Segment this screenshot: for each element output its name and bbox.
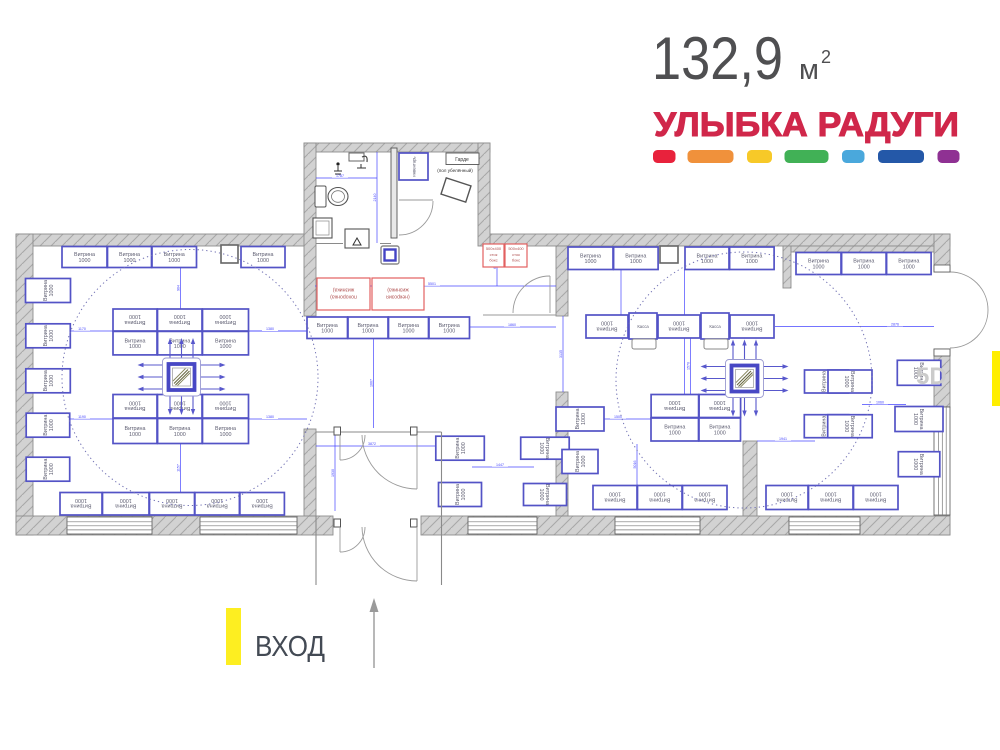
svg-text:похоронка): похоронка)	[330, 294, 357, 300]
svg-text:1000: 1000	[362, 329, 374, 335]
svg-text:1000: 1000	[220, 313, 232, 319]
svg-text:2: 2	[821, 47, 831, 67]
svg-text:1000: 1000	[669, 430, 681, 436]
svg-text:Касса: Касса	[637, 324, 649, 329]
svg-text:бокс: бокс	[489, 258, 497, 263]
svg-text:1000: 1000	[858, 264, 870, 270]
svg-text:1000: 1000	[781, 491, 793, 497]
svg-text:5016: 5016	[633, 461, 637, 469]
svg-text:1447: 1447	[496, 463, 504, 467]
svg-text:1000: 1000	[129, 432, 141, 438]
svg-text:УЛЫБКА РАДУГИ: УЛЫБКА РАДУГИ	[654, 106, 959, 144]
svg-text:1000: 1000	[443, 329, 455, 335]
svg-text:1000: 1000	[174, 399, 186, 405]
svg-text:964: 964	[176, 285, 180, 291]
svg-text:1000: 1000	[912, 413, 918, 425]
svg-text:1667: 1667	[369, 379, 373, 387]
svg-text:3872: 3872	[368, 442, 376, 446]
svg-text:1000: 1000	[714, 430, 726, 436]
svg-text:1000: 1000	[220, 344, 232, 350]
svg-text:1000: 1000	[124, 258, 136, 264]
svg-text:(пол убелённый): (пол убелённый)	[437, 167, 473, 173]
svg-text:1000: 1000	[257, 258, 269, 264]
svg-text:1000: 1000	[699, 491, 711, 497]
svg-text:1000: 1000	[609, 491, 621, 497]
svg-text:жизника): жизника)	[332, 287, 354, 293]
svg-text:1000: 1000	[174, 344, 186, 350]
svg-text:1000: 1000	[49, 419, 55, 431]
svg-text:1000: 1000	[601, 320, 613, 326]
svg-text:1000: 1000	[129, 399, 141, 405]
svg-text:1000: 1000	[581, 456, 587, 468]
svg-text:1000: 1000	[912, 458, 918, 470]
svg-text:1000: 1000	[79, 258, 91, 264]
svg-text:Гарде: Гарде	[455, 157, 469, 163]
svg-text:1000: 1000	[843, 420, 849, 432]
svg-text:1000: 1000	[49, 375, 55, 387]
svg-text:1000: 1000	[49, 463, 55, 475]
svg-text:ВХОД: ВХОД	[255, 631, 325, 663]
svg-text:1860: 1860	[508, 323, 516, 327]
svg-text:1000: 1000	[256, 497, 268, 503]
svg-text:1000: 1000	[174, 432, 186, 438]
svg-text:3135: 3135	[559, 350, 563, 358]
svg-text:1000: 1000	[461, 442, 467, 454]
svg-text:1000: 1000	[461, 489, 467, 501]
svg-text:1570: 1570	[686, 362, 690, 370]
svg-text:м: м	[799, 54, 819, 86]
svg-text:1000: 1000	[538, 489, 544, 501]
svg-text:1380: 1380	[266, 415, 274, 419]
svg-text:1000: 1000	[166, 497, 178, 503]
svg-text:1000: 1000	[129, 344, 141, 350]
svg-text:2140: 2140	[373, 194, 377, 202]
svg-text:1000: 1000	[538, 442, 544, 454]
svg-text:5501: 5501	[428, 282, 436, 286]
svg-text:500x400: 500x400	[508, 246, 524, 251]
svg-text:1000: 1000	[630, 259, 642, 265]
svg-text:сток: сток	[512, 252, 520, 257]
svg-text:бокс: бокс	[512, 258, 520, 263]
svg-text:(некрозия: (некрозия	[386, 294, 410, 300]
svg-text:1000: 1000	[870, 491, 882, 497]
svg-text:1000: 1000	[403, 329, 415, 335]
svg-text:Касса: Касса	[709, 324, 721, 329]
svg-text:1000: 1000	[654, 491, 666, 497]
svg-text:5D: 5D	[916, 363, 947, 390]
svg-text:1000: 1000	[701, 259, 713, 265]
svg-text:1000: 1000	[49, 285, 55, 297]
svg-text:1000: 1000	[211, 497, 223, 503]
svg-text:1000: 1000	[585, 259, 597, 265]
svg-text:1157: 1157	[176, 464, 180, 472]
svg-text:1000: 1000	[843, 376, 849, 388]
svg-text:1000: 1000	[120, 497, 132, 503]
svg-text:1000: 1000	[746, 259, 758, 265]
svg-text:1000: 1000	[129, 313, 141, 319]
svg-text:2876: 2876	[891, 322, 899, 326]
svg-text:1000: 1000	[75, 497, 87, 503]
svg-text:1170: 1170	[78, 327, 86, 331]
svg-text:1000: 1000	[813, 264, 825, 270]
svg-text:1060: 1060	[876, 400, 884, 404]
svg-text:1000: 1000	[669, 399, 681, 405]
svg-text:сток: сток	[490, 252, 498, 257]
svg-text:132,9: 132,9	[652, 25, 783, 92]
svg-text:1000: 1000	[581, 413, 587, 425]
svg-text:500x400: 500x400	[486, 246, 502, 251]
svg-text:1000: 1000	[746, 320, 758, 326]
svg-text:1000: 1000	[168, 258, 180, 264]
svg-text:1930: 1930	[331, 469, 335, 477]
svg-text:инвентарь: инвентарь	[411, 156, 416, 177]
svg-text:1000: 1000	[220, 399, 232, 405]
svg-text:1000: 1000	[825, 491, 837, 497]
svg-text:1000: 1000	[220, 432, 232, 438]
svg-text:1000: 1000	[49, 330, 55, 342]
svg-text:1000: 1000	[673, 320, 685, 326]
svg-text:1000: 1000	[903, 264, 915, 270]
svg-text:1000: 1000	[321, 329, 333, 335]
svg-text:1941: 1941	[779, 437, 787, 441]
svg-text:1000: 1000	[714, 399, 726, 405]
svg-text:1190: 1190	[78, 415, 86, 419]
svg-text:1000: 1000	[174, 313, 186, 319]
svg-text:1380: 1380	[266, 327, 274, 331]
svg-text:жизника): жизника)	[387, 287, 409, 293]
